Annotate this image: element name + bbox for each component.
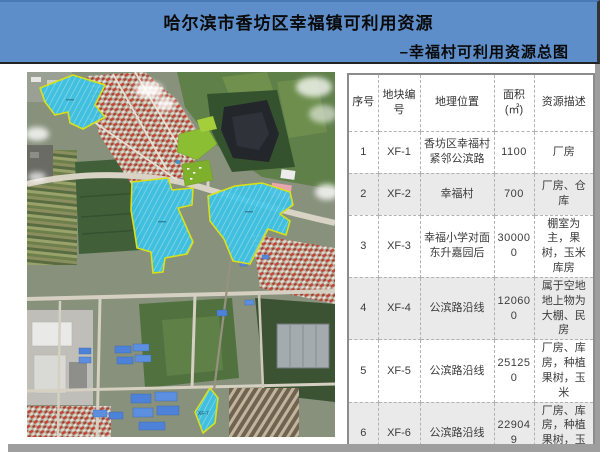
cell-seq: 4 (348, 277, 378, 339)
cell-seq: 2 (348, 173, 378, 215)
barracks-rows (229, 388, 299, 437)
pond (175, 160, 181, 164)
cell-desc: 厂房 (534, 131, 594, 173)
cell-area: 300000 (494, 215, 534, 277)
table-body: 1XF-1香坊区幸福村紧邻公滨路1100厂房2XF-2幸福村700厂房、仓库3X… (348, 131, 594, 452)
cell-code: XF-5 (378, 340, 420, 402)
cell-code: XF-2 (378, 173, 420, 215)
cell-code: XF-1 (378, 131, 420, 173)
building (31, 77, 41, 82)
cell-desc: 属于空地地上物为大棚、民房 (534, 277, 594, 339)
cell-location: 香坊区幸福村紧邻公滨路 (420, 131, 494, 173)
header-band: 哈尔滨市香坊区幸福镇可利用资源 –幸福村可利用资源总图 (0, 0, 600, 64)
cell-area: 700 (494, 173, 534, 215)
table-row: 1XF-1香坊区幸福村紧邻公滨路1100厂房 (348, 131, 594, 173)
cell-seq: 3 (348, 215, 378, 277)
cell-code: XF-4 (378, 277, 420, 339)
cell-area: 1100 (494, 131, 534, 173)
white-building (32, 322, 72, 346)
table-row: 4XF-4公滨路沿线120600属于空地地上物为大棚、民房 (348, 277, 594, 339)
table-row: 2XF-2幸福村700厂房、仓库 (348, 173, 594, 215)
column-header: 地理位置 (420, 74, 494, 131)
building (30, 152, 39, 158)
cell-desc: 棚室为主，果树，玉米库房 (534, 215, 594, 277)
page-title: 哈尔滨市香坊区幸福镇可利用资源 (0, 9, 597, 34)
slide-page: 哈尔滨市香坊区幸福镇可利用资源 –幸福村可利用资源总图 (0, 0, 600, 452)
cell-code: XF-3 (378, 215, 420, 277)
frame-edge-right (595, 64, 600, 444)
resource-table: 序号地块编号地理位置面积(㎡)资源描述 1XF-1香坊区幸福村紧邻公滨路1100… (347, 73, 595, 452)
white-building (34, 355, 66, 393)
cell-seq: 1 (348, 131, 378, 173)
satellite-map: XF-7 (27, 72, 335, 437)
page-subtitle: –幸福村可利用资源总图 (0, 41, 597, 62)
cell-area: 120600 (494, 277, 534, 339)
cell-location: 公滨路沿线 (420, 277, 494, 339)
cell-area: 251250 (494, 340, 534, 402)
building (69, 362, 87, 390)
cell-location: 公滨路沿线 (420, 340, 494, 402)
table-header-row: 序号地块编号地理位置面积(㎡)资源描述 (348, 74, 594, 131)
cell-location: 幸福小学对面东升嘉园后 (420, 215, 494, 277)
cell-desc: 厂房、库房，种植果树，玉米 (534, 340, 594, 402)
cell-desc: 厂房、仓库 (534, 173, 594, 215)
cell-seq: 5 (348, 340, 378, 402)
column-header: 地块编号 (378, 74, 420, 131)
column-header: 序号 (348, 74, 378, 131)
column-header: 资源描述 (534, 74, 594, 131)
column-header: 面积(㎡) (494, 74, 534, 131)
frame-edge-bottom (8, 444, 600, 452)
table-row: 3XF-3幸福小学对面东升嘉园后300000棚室为主，果树，玉米库房 (348, 215, 594, 277)
cell-location: 幸福村 (420, 173, 494, 215)
parcel-label-xf7: XF-7 (198, 411, 209, 417)
table-row: 5XF-5公滨路沿线251250厂房、库房，种植果树，玉米 (348, 340, 594, 402)
